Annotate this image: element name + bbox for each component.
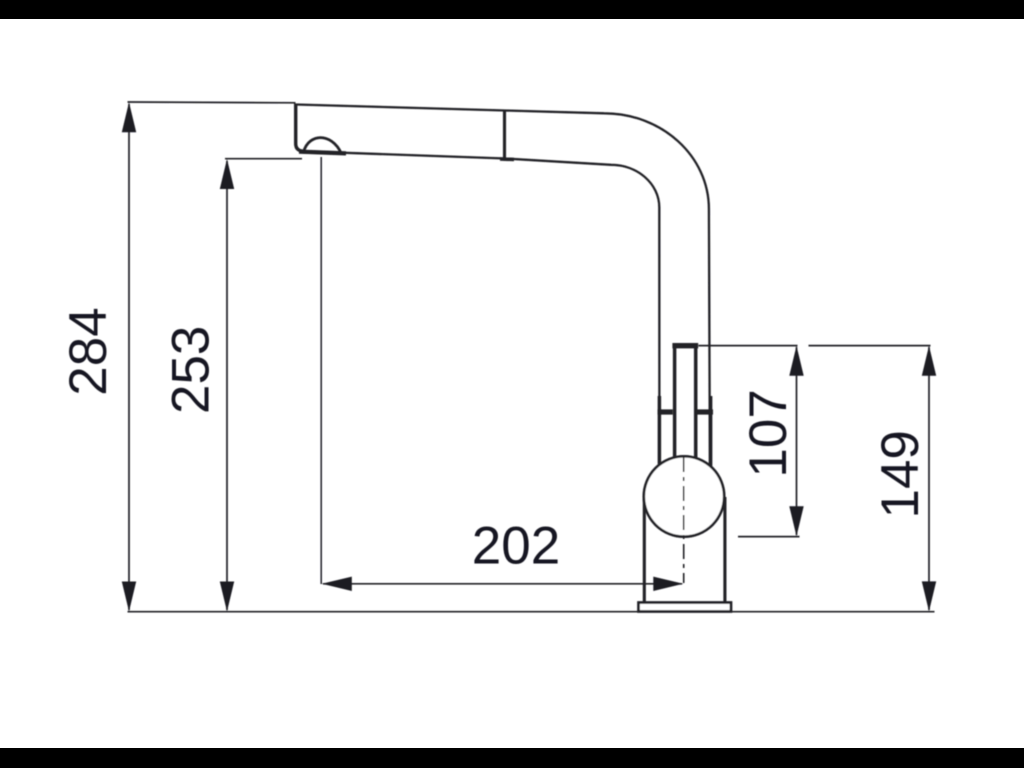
svg-text:253: 253 bbox=[162, 326, 221, 414]
svg-text:284: 284 bbox=[59, 307, 118, 395]
svg-text:149: 149 bbox=[871, 430, 930, 518]
svg-text:202: 202 bbox=[472, 517, 560, 576]
svg-text:107: 107 bbox=[739, 389, 798, 477]
